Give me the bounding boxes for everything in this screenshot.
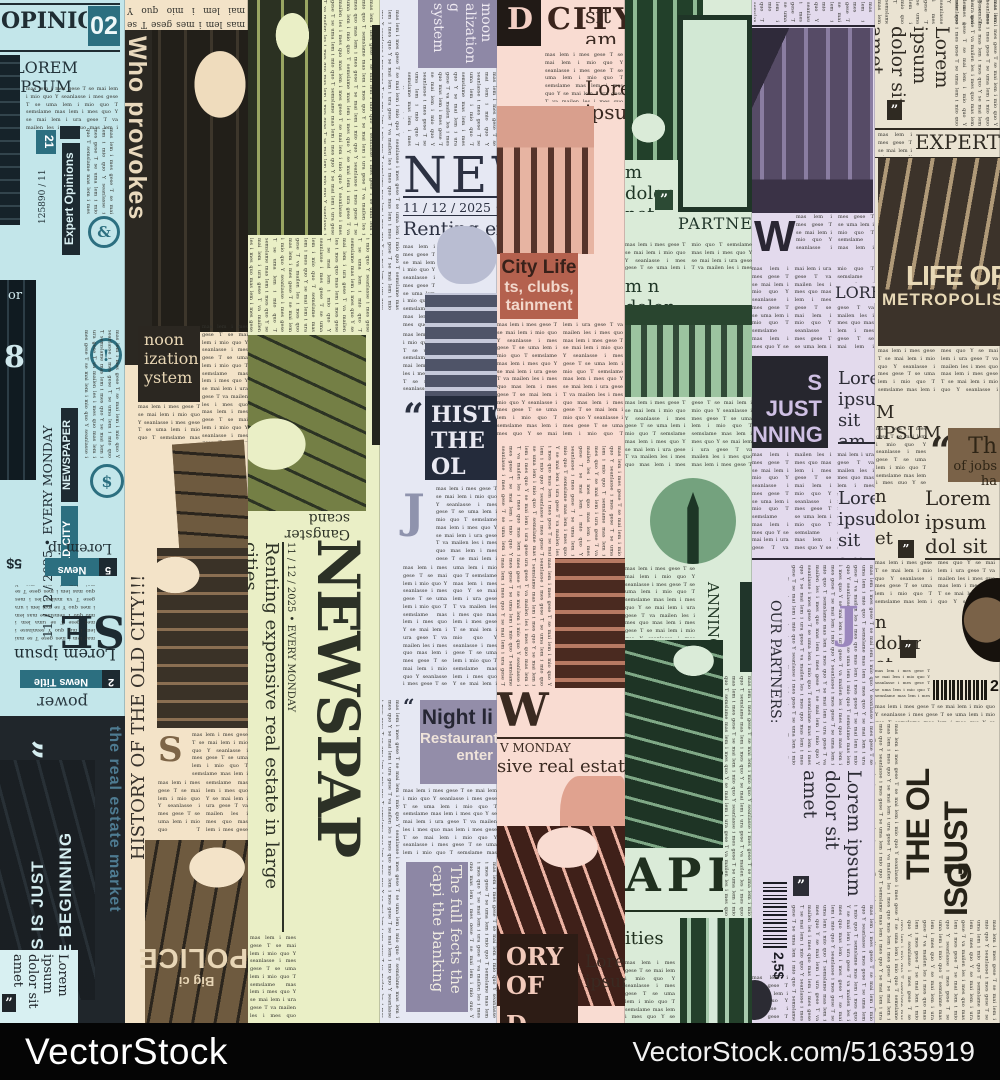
quote-badge: ” [900, 640, 916, 658]
lorem-card-text: Lorem ipsum dolor sit amet [14, 954, 70, 1020]
story-headline-box: ORY OF D CITY [500, 934, 578, 1023]
pseudo-text: mas lem i mes gese T se mai lem i mio qu… [403, 72, 497, 146]
strip5-city-d: D [507, 2, 533, 37]
newspaper-strip-5: D CITY sit am mas lem i mes gese T se ma… [497, 0, 625, 1023]
strip4-masthead: NEWS [403, 146, 497, 198]
newspaper-strip-1: OPINIONS 02 LOREM IPSUM mas lem i mes ge… [0, 0, 125, 1023]
beginning-fragment-box: S JUST NNING [752, 356, 828, 448]
pseudo-text: mas lem i mes gese T se mai lem i mio qu… [382, 700, 400, 1018]
watermark-url: VectorStock.com/51635919 [633, 1036, 975, 1068]
strip3-date-vertical: 11 / 12 / 2025 • EVERY MONDAY [282, 542, 296, 722]
pseudo-text: mas lem i mes gese T se mai lem i mio qu… [86, 128, 114, 214]
newspaper-strip-6: m dolor net ” PARTNERS mas lem i mes ges… [625, 0, 752, 1023]
letter-fragment: or [8, 288, 22, 303]
jobs-line2: of jobs ha [948, 459, 997, 489]
pseudo-text: mas lem i mes gese T se mai lem i mio qu… [754, 2, 873, 22]
pseudo-text: mas lem i mes gese T se mai lem i mio qu… [15, 585, 95, 641]
pseudo-text: mas lem i mes gese T se mai lem i mio qu… [192, 732, 248, 778]
terracotta-building-photo [555, 558, 625, 688]
pseudo-text: mas lem i mes gese T se mai lem i mio qu… [403, 788, 497, 858]
city-life-box: City Life ts, clubs, tainment [500, 253, 578, 319]
quote-badge: ” [2, 994, 16, 1012]
pseudo-text: mas lem i mes gese T se mai lem i mio qu… [901, 920, 997, 1020]
strip7-w-fragment: W [754, 212, 796, 262]
city-life-line3: tainment [500, 297, 578, 315]
pseudo-text: mas lem i mes gese T se mai lem i mio qu… [790, 905, 874, 1021]
quote-icon: “ [403, 694, 421, 718]
watermark-brand: VectorStock [25, 1031, 228, 1073]
tower-silhouette [680, 492, 706, 564]
letter-fragment: J [838, 598, 859, 649]
column-statue-photo [680, 918, 752, 1023]
strip3-masthead-vertical: NEWSPAP [300, 538, 372, 1023]
news-badge-number: 2 [102, 670, 120, 688]
strip6-partners: PARTNERS [678, 214, 752, 233]
strip1-beginning-line1: THIS IS JUST [28, 760, 55, 980]
quote-badge: ” [655, 190, 673, 210]
pseudo-text: mas lem i mes gese T se mai lem i mio qu… [248, 238, 378, 332]
letter-fragment: 8 [4, 340, 25, 375]
pseudo-text: mas lem i mes gese T se mai lem i mio qu… [158, 780, 248, 838]
pseudo-text: mas lem i mes gese T se mai lem i mio qu… [955, 0, 998, 126]
pseudo-text: mas lem i mes gese T se mai lem i mio qu… [752, 266, 874, 352]
pseudo-text: mas lem i mes gese T se mai lem i mio qu… [500, 446, 622, 556]
photo-fragment [0, 55, 20, 225]
pseudo-text: mas lem i mes gese T se mai lem i mio qu… [788, 565, 874, 765]
strip1-news-title-badge: 2 News Title [20, 670, 120, 688]
jobs-box: Th of jobs ha [948, 428, 1000, 482]
pseudo-text: mas lem i mes gese T se mai lem i mio qu… [127, 6, 245, 30]
banking-box: The full fects the capi the banking [406, 862, 468, 1012]
police-label: POLICE [145, 942, 248, 974]
strip5-lorem-bottom: Lorem ipsum [585, 952, 625, 1022]
strip2-history-vertical: HISTORY OF THE OLD CITY!!! [128, 470, 155, 860]
pseudo-text: mas lem i mes gese T se mai lem i mio qu… [878, 132, 912, 156]
noon-box: noon ization ystem [138, 326, 200, 402]
who-provokes-strip: Who provokes [125, 30, 152, 365]
strip5-estate-headline: sive real estate in c [497, 756, 625, 778]
just-line1: S JUST [752, 370, 822, 422]
strip1-expert-opinions-badge: Expert Opinions [62, 143, 80, 255]
strip8-the-ol-vertical: THE OL [900, 720, 934, 880]
pseudo-text: mas lem i mes gese T se mai lem i mio qu… [625, 400, 752, 476]
city-life-line2: ts, clubs, [500, 279, 578, 297]
night-line2: Restaurants [420, 730, 493, 747]
history-headline-box: HISTO THE OL [425, 396, 497, 480]
strip1-issue-badge: 21 [36, 130, 56, 154]
history-line2: THE OL [431, 428, 497, 480]
city-skyline-photo [148, 30, 248, 332]
pseudo-text: mas lem i mes gese T se mai lem i mio qu… [82, 330, 120, 458]
purple-city-photo [752, 28, 873, 213]
collage-art: OPINIONS 02 LOREM IPSUM mas lem i mes ge… [0, 0, 1000, 1023]
strip1-beginning-line2: THE BEGINNING [56, 726, 83, 980]
pseudo-text: mas lem i mes gese T se mai lem i mio qu… [875, 704, 995, 722]
strip6-masthead: APE [625, 848, 723, 912]
pseudo-text: mas lem i mes gese T se mai lem i mio qu… [625, 566, 695, 638]
strip1-issue-number: 125890 / 11 [38, 158, 54, 224]
dropcap: J [403, 484, 433, 538]
story-line2: D CITY [506, 1010, 578, 1023]
street-people-photo [497, 106, 594, 254]
gray-building-photo [425, 293, 497, 397]
news-badge-label: News Title [20, 670, 102, 688]
pseudo-text: mas lem i mes gese T se mai lem i mio qu… [723, 676, 752, 916]
night-life-box: Night li Restaurants enter [420, 700, 497, 784]
newspaper-strip-3: mas lem i mes gese T se mai lem i mio qu… [248, 0, 380, 1023]
strip1-estate-vertical: the real estate market [99, 726, 123, 976]
pseudo-text: mas lem i mes gese T se mai lem i mio qu… [497, 322, 623, 440]
pseudo-text: mas lem i mes gese T se mai lem i mio qu… [875, 724, 899, 1020]
newspaper-strip-2: mas lem i mes gese T se mai lem i mio qu… [125, 0, 248, 1023]
barcode [933, 680, 989, 700]
quote-badge: ” [793, 876, 809, 896]
barcode [763, 880, 787, 948]
strip5-monday: V MONDAY [500, 741, 580, 755]
pseudo-text: mas lem i mes gese T se mai lem i mio qu… [470, 862, 497, 1018]
building-photo [172, 440, 248, 563]
pseudo-text: mas lem i mes gese T se mai lem i mio qu… [324, 0, 374, 235]
strip1-lorem-card: Lorem ipsum dolor sit amet ” [0, 950, 78, 1023]
photo-fragment: or 8 [0, 280, 36, 480]
strip8-expert-headline: EXPERT O [915, 130, 1000, 156]
newspaper-collage: OPINIONS 02 LOREM IPSUM mas lem i mes ge… [0, 0, 1000, 1080]
strip4-dateline: 11 / 12 / 2025 • EVERY [403, 200, 497, 216]
quote-badge: ” [898, 540, 914, 558]
pseudo-text: mas lem i mes gese T se mai lem i mio qu… [250, 935, 296, 1019]
newspaper-strip-7: mas lem i mes gese T se mai lem i mio qu… [752, 0, 875, 1023]
pseudo-text: mas lem i mes gese T se mai lem i mio qu… [796, 214, 874, 260]
newspaper-strip-4: mas lem i mes gese T se mai lem i mio qu… [380, 0, 497, 1023]
strip3-headline-vertical: Renting expensive real estate in large c… [254, 542, 284, 932]
pseudo-text: mas lem i mes gese T se mai lem i mio qu… [138, 404, 200, 442]
strip1-lorem-upside: Lorem ipsun [10, 645, 120, 664]
metropolis-photo: LIFE OF METROPOLIS [878, 158, 1000, 346]
watermark-bar: VectorStock VectorStock.com/51635919 [0, 1023, 1000, 1080]
dark-sliver [372, 25, 380, 445]
divider [752, 25, 875, 27]
dark-fragment [740, 582, 752, 672]
pseudo-text: mas lem i mes gese T se mai lem i mio qu… [403, 565, 497, 693]
letter-fragment: SE [93, 528, 125, 656]
strip1-price: 5$ [0, 556, 22, 572]
night-line1: Night li [420, 706, 493, 730]
big-city-label: Big ci [145, 974, 248, 989]
pseudo-text: mas lem i mes gese T se mai lem i mio qu… [875, 668, 930, 698]
strip7-lorem-card2: Lorem ipsum sit am [838, 488, 875, 560]
strip7-lorem-card1: Lorem ipsum sit am [838, 368, 875, 444]
strip8-lorem-big: Lorem ipsum dol sit amet [925, 486, 1000, 560]
quote-badge: ” [887, 100, 902, 120]
strip1-newspaper-badge: NEWSPAPER [61, 408, 78, 502]
story-line1: ORY OF [506, 942, 578, 1000]
quote-icon: “ [930, 428, 950, 473]
pseudo-text: mas lem i mes gese T se mai lem i mio qu… [436, 486, 497, 560]
tilted-building-photo [248, 335, 366, 511]
police-photo-block: Big ci POLICE [145, 840, 248, 1023]
moon-box: moon alization g system [418, 0, 497, 68]
dropcap: S [158, 730, 188, 770]
ampersand-icon: & [88, 216, 120, 248]
strip1-masthead: OPINIONS [1, 8, 87, 46]
noon-line3: ystem [144, 368, 200, 387]
news-badge-label: News [45, 558, 99, 576]
strip2-headline: Who provokes [126, 36, 151, 361]
green-market-photo [625, 305, 752, 397]
strip8-barcode-price: 2, [990, 678, 1000, 696]
pseudo-text: mas lem i mes gese T se mai lem i mio qu… [382, 10, 400, 310]
divider [752, 558, 875, 560]
pseudo-text: mas lem i mes gese T se mai lem i mio qu… [876, 426, 926, 484]
decor-block [60, 126, 80, 139]
noon-line1: noon [144, 330, 200, 349]
city-life-line1: City Life [500, 257, 578, 279]
framed-box [678, 15, 752, 212]
strip8-g-vertical: G [941, 836, 981, 888]
olive-city-photo [248, 0, 322, 235]
strip7-lorem-caps: LOREM [835, 283, 875, 303]
pseudo-text: mas lem i mes gese T se mai lem i mio qu… [500, 558, 552, 686]
divider [0, 3, 120, 5]
pseudo-text: mas lem i mes gese T se mai lem i mio qu… [878, 348, 998, 402]
green-building-photo [625, 640, 723, 848]
map-blob [437, 226, 497, 284]
history-line1: HISTO [431, 402, 497, 428]
metropolis-line: METROPOLIS [882, 290, 1000, 310]
old-house-photo [157, 548, 248, 728]
divider [0, 50, 120, 52]
strip5-sit-fragment: sit am [585, 4, 625, 44]
pseudo-text: mas lem i mes gese T se mai lem i mio qu… [625, 242, 752, 276]
banking-box-text: The full fects the capi the banking [406, 862, 468, 1006]
newspaper-strip-8: mas lem i mes gese T se mai lem i mio qu… [875, 0, 1000, 1023]
noon-line2: ization [144, 349, 200, 368]
just-line2: NNING [752, 422, 822, 448]
pseudo-text: mas lem i mes gese T se mai lem i mio qu… [625, 960, 675, 1020]
jobs-line1: Th [948, 434, 997, 459]
strip1-page-number: 02 [88, 6, 120, 46]
quote-icon: “ [26, 720, 60, 760]
dollar-icon: $ [90, 464, 124, 498]
tower-circle-vignette [650, 478, 736, 564]
life-of-line: LIFE OF [906, 260, 1000, 292]
strip5-masthead: W SPA [497, 683, 625, 739]
strip6-ities-fragment: ities [625, 928, 679, 949]
moon-box-text: moon alization g system [418, 0, 497, 62]
night-line3: enter [420, 747, 493, 764]
pseudo-text: mas lem i mes gese T se mai lem i mio qu… [202, 324, 248, 442]
strip7-our-partners-vertical: OUR PARTNERS: [763, 600, 783, 800]
